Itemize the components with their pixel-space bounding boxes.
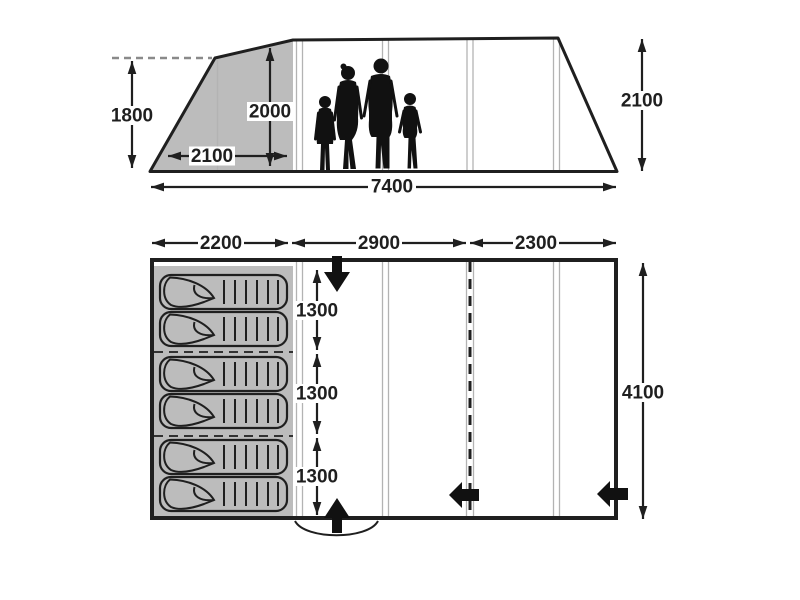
family-silhouette [316,59,421,171]
dim-1800-label: 1800 [111,106,153,127]
dim-2900-label: 2900 [358,233,400,254]
dim-2300-label: 2300 [515,233,557,254]
person-boy [400,93,421,169]
dim-4100-label: 4100 [622,383,664,404]
sleeping-bag [160,477,287,511]
dim-2100-right-label: 2100 [621,91,663,112]
floor-plan: 2200 2900 2300 1300 1300 1300 4100 [152,233,666,535]
dim-2200-label: 2200 [200,233,242,254]
dim-7400-label: 7400 [371,177,413,198]
entrance-arrows [324,256,628,533]
tent-dimensions-diagram: 1800 2000 2100 7400 2100 [0,0,800,600]
sleeping-bag [160,312,287,346]
main-door-arrow [324,498,350,533]
dim-1300-middle-label: 1300 [296,384,338,405]
middle-door-arrow [449,482,479,508]
dim-1300-bottom-label: 1300 [296,467,338,488]
sleeping-bag [160,394,287,428]
side-door-arrow [597,481,628,507]
person-woman [335,64,362,170]
person-girl [316,96,335,170]
person-man [364,59,397,169]
sleeping-bag [160,357,287,391]
dim-2000-label: 2000 [249,102,291,123]
sleeping-bag [160,440,287,474]
dim-1300-top-label: 1300 [296,301,338,322]
sleeping-bag [160,275,287,309]
side-view: 1800 2000 2100 7400 2100 [109,38,665,198]
dim-2100-front-label: 2100 [191,146,233,167]
diagram-svg: 1800 2000 2100 7400 2100 [0,0,800,600]
